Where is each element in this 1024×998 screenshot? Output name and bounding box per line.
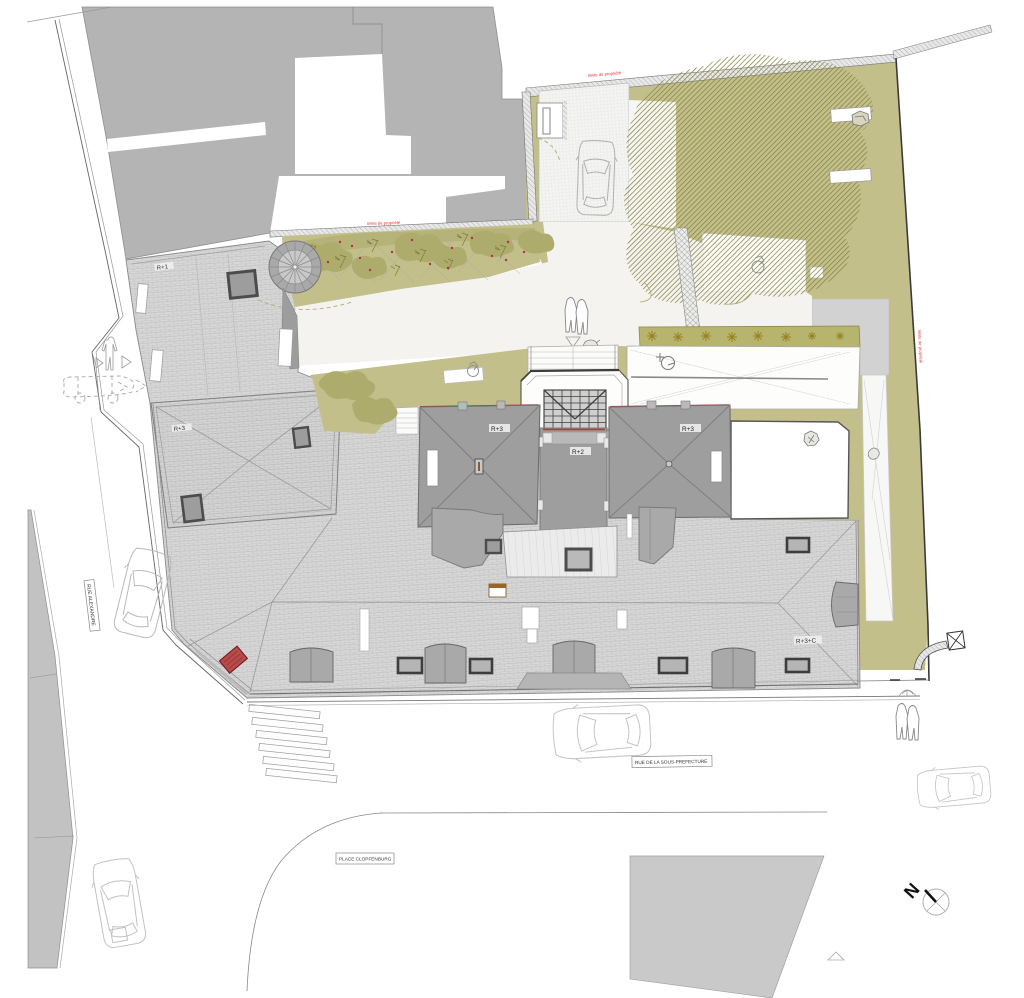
svg-text:PLACE CLOPFENBURG: PLACE CLOPFENBURG [339,857,392,862]
svg-text:R+2: R+2 [572,449,584,456]
svg-text:R+3+C: R+3+C [796,638,817,646]
svg-text:R+3: R+3 [682,426,694,433]
svg-text:R+3: R+3 [491,426,503,433]
svg-text:R+3: R+3 [174,426,186,433]
